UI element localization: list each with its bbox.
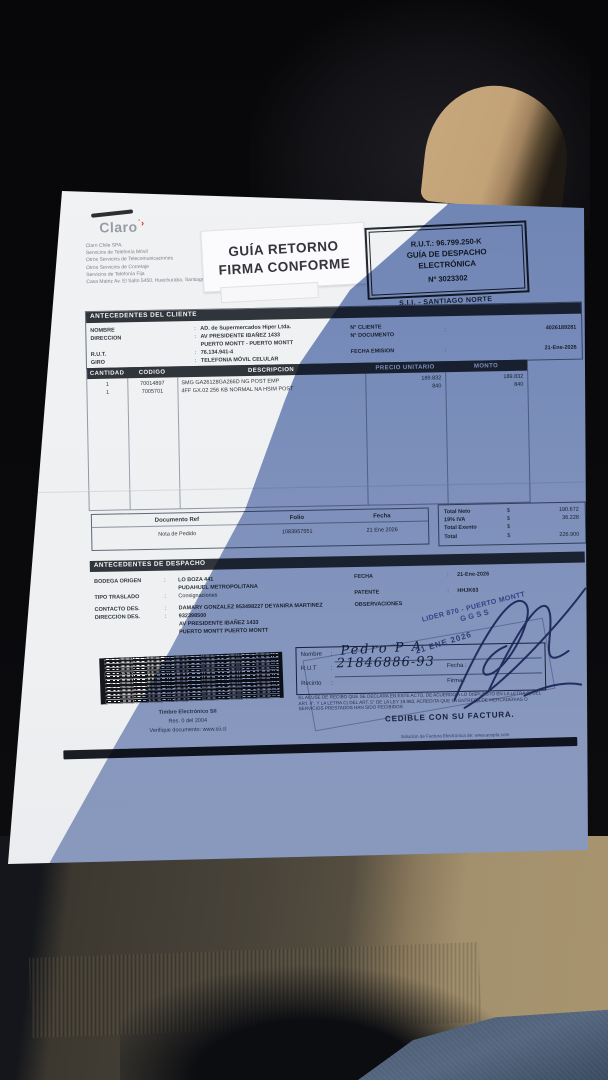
bottom-rule — [63, 737, 577, 759]
item-unit-price: 840 — [365, 382, 441, 391]
col-descripcion: DESCRIPCION — [177, 364, 365, 376]
exento-label: Total Exento — [444, 524, 477, 533]
receipt-rut-label: R.U.T — [301, 665, 317, 673]
col-cantidad: CANTIDAD — [87, 369, 127, 378]
claro-logo-accent: ˙› — [137, 218, 144, 228]
giro-label: GIRO — [91, 359, 105, 367]
receipt-recinto-label: Recinto — [301, 680, 321, 688]
colon — [194, 333, 196, 341]
handwritten-rut: 21846886-93 — [337, 654, 435, 671]
entry-line — [335, 672, 542, 677]
col-precio-unitario: PRECIO UNITARIO — [365, 363, 445, 373]
bodega-value-2: PUDAHUEL METROPOLITANA — [178, 583, 258, 593]
colon — [165, 613, 167, 621]
colon — [195, 349, 197, 357]
colon — [445, 346, 447, 354]
colon — [164, 577, 166, 585]
client-section-title: ANTECEDENTES DEL CLIENTE — [86, 303, 581, 324]
dispatch-section-title: ANTECEDENTES DE DESPACHO — [90, 552, 585, 573]
client-address-2: PUERTO MONTT - PUERTO MONTT — [201, 339, 294, 349]
car-interior-photo: Claro˙› Claro Chile SPA. Servicios de Te… — [0, 0, 608, 1080]
col-codigo: CODIGO — [127, 368, 177, 377]
fecha-label: FECHA — [354, 573, 373, 581]
fecha-header: Fecha — [342, 512, 422, 522]
item-code: 7005701 — [127, 387, 177, 396]
direccion-label: DIRECCION — [90, 334, 121, 343]
fecha-value: 21 Ene 2026 — [342, 526, 422, 536]
currency: $ — [507, 523, 510, 531]
folio-value: 1083957551 — [252, 527, 342, 537]
receipt-firma-label: Firma : — [447, 677, 466, 685]
receipt-fecha-label: Fecha : — [447, 662, 467, 670]
contacto-value: DAMARY GONZALEZ 953498227 DEYANIRA MARTI… — [179, 602, 323, 613]
tipo-label: TIPO TRASLADO — [94, 593, 139, 602]
bodega-label: BODEGA ORIGEN — [94, 577, 141, 586]
client-section: ANTECEDENTES DEL CLIENTE NOMBRE DIRECCIO… — [85, 302, 583, 370]
patente-label: PATENTE — [354, 589, 379, 597]
item-amount: 840 — [445, 381, 523, 390]
colon — [195, 357, 197, 365]
client-giro: TELEFONIA MÓVIL CELULAR — [201, 355, 279, 364]
timbre-text: Timbre Electrónico SII Res. 0 del 2004 V… — [97, 706, 279, 736]
colon — [164, 593, 166, 601]
col-monto: MONTO — [445, 361, 527, 371]
return-stamp: GUÍA RETORNO FIRMA CONFORME — [200, 222, 367, 293]
colon — [331, 679, 333, 687]
docref-value: Nota de Pedido — [102, 529, 252, 540]
n-documento-value: 4026189281 — [454, 324, 576, 334]
colon — [165, 605, 167, 613]
item-desc: 4FF GX.02 256 KB NORMAL NA HSIM POST — [181, 385, 293, 395]
direccion-des-label: DIRECCION DES. — [95, 613, 140, 622]
fecha-emision-value: 21-Ene-2026 — [455, 344, 577, 354]
guia-number: Nº 3023302 — [369, 270, 527, 286]
pen-mark — [91, 209, 133, 217]
direccion-des-3: PUERTO MONTT PUERTO MONTT — [179, 627, 268, 637]
observaciones-label: OBSERVACIONES — [355, 600, 403, 609]
tipo-value: Consignaciones — [178, 592, 217, 601]
fecha-emision-label: FECHA EMISION — [351, 347, 395, 356]
totals-box: Total Neto $ 190.672 19% IVA $ 36.228 To… — [438, 502, 587, 547]
colon — [444, 326, 446, 334]
docref-box: Documento Ref Folio Fecha Nota de Pedido… — [91, 508, 430, 551]
receipt-box: Nombre R.U.T Recinto Fecha : Firma : Ped… — [295, 642, 546, 695]
receipt-nombre-label: Nombre — [300, 651, 321, 659]
item-qty: 1 — [87, 388, 127, 397]
claro-logo: Claro˙› — [99, 218, 145, 236]
pdf417-barcode — [99, 652, 284, 705]
colon — [330, 650, 332, 658]
colon — [194, 325, 196, 333]
n-documento-label: N° DOCUMENTO — [350, 331, 394, 340]
total-value: 226.900 — [439, 531, 579, 542]
rut-box: R.U.T.: 96.799.250-K GUÍA DE DESPACHO EL… — [364, 220, 529, 300]
colon — [331, 664, 333, 672]
